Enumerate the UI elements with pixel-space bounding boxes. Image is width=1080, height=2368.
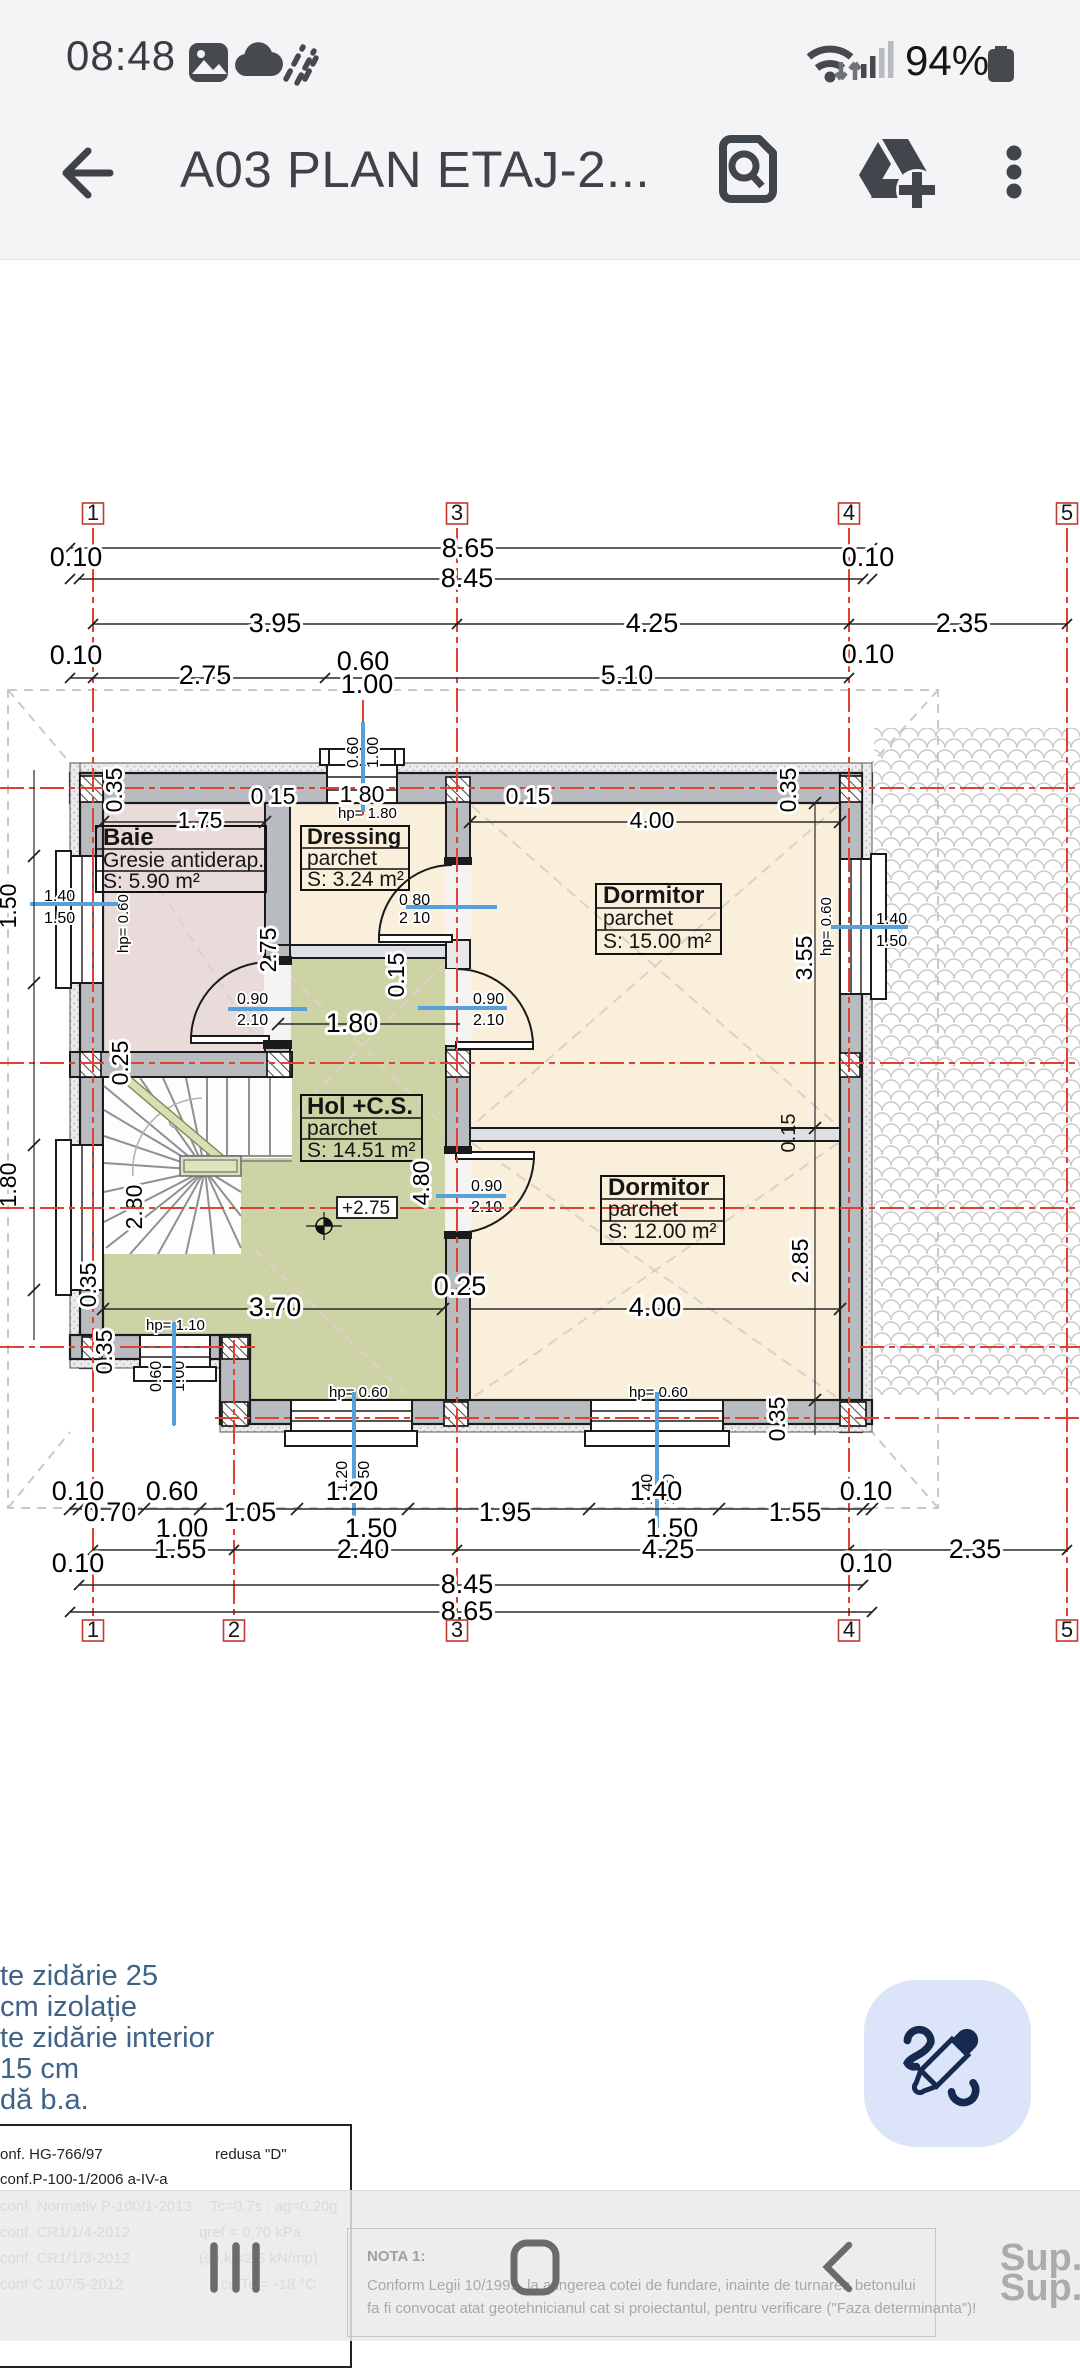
svg-text:S: 15.00 m²: S: 15.00 m²: [603, 930, 712, 953]
svg-text:0.60: 0.60: [148, 1361, 165, 1392]
svg-text:hp= 1.80: hp= 1.80: [338, 805, 397, 822]
svg-text:1: 1: [87, 1617, 99, 1642]
svg-text:1.00: 1.00: [341, 669, 394, 699]
svg-text:1.50: 1.50: [0, 884, 21, 929]
svg-text:0.70: 0.70: [84, 1497, 137, 1527]
svg-text:5: 5: [1061, 1617, 1073, 1642]
svg-text:Hol +C.S.: Hol +C.S.: [307, 1093, 413, 1120]
svg-text:0.10: 0.10: [840, 1548, 893, 1578]
svg-text:0.10: 0.10: [840, 1476, 893, 1506]
svg-text:3: 3: [451, 1617, 463, 1642]
svg-text:0.15: 0.15: [383, 953, 409, 998]
svg-text:2.75: 2.75: [179, 660, 232, 690]
svg-text:1.40: 1.40: [630, 1476, 683, 1506]
svg-text:hp= 0.60: hp= 0.60: [329, 1384, 388, 1401]
svg-text:+2.75: +2.75: [342, 1198, 390, 1219]
svg-text:parchet: parchet: [307, 1117, 377, 1140]
svg-text:S: 3.24 m²: S: 3.24 m²: [307, 868, 404, 891]
svg-text:0.10: 0.10: [842, 639, 895, 669]
svg-text:1.95: 1.95: [479, 1497, 532, 1527]
svg-text:0.60: 0.60: [345, 737, 362, 768]
svg-text:4: 4: [843, 500, 855, 525]
svg-text:4.00: 4.00: [630, 807, 675, 833]
svg-text:5.10: 5.10: [601, 660, 654, 690]
svg-text:0.10: 0.10: [52, 1548, 105, 1578]
svg-text:0.25: 0.25: [434, 1271, 487, 1301]
svg-text:Gresie antiderap.: Gresie antiderap.: [103, 849, 264, 872]
svg-text:2.85: 2.85: [787, 1239, 813, 1284]
svg-text:0 15: 0 15: [506, 783, 551, 809]
svg-text:Dressing: Dressing: [307, 824, 401, 849]
svg-text:2 10: 2 10: [399, 910, 430, 927]
svg-text:S: 5.90 m²: S: 5.90 m²: [103, 870, 200, 893]
svg-text:1.55: 1.55: [769, 1497, 822, 1527]
svg-text:2.35: 2.35: [949, 1534, 1002, 1564]
svg-text:1.80: 1.80: [326, 1008, 379, 1038]
svg-text:Dormitor: Dormitor: [603, 882, 704, 909]
svg-text:3.95: 3.95: [249, 608, 302, 638]
svg-text:3.55: 3.55: [791, 936, 817, 981]
svg-text:0.35: 0.35: [91, 1330, 117, 1375]
svg-text:S: 12.00 m²: S: 12.00 m²: [608, 1220, 717, 1243]
svg-text:0.90: 0.90: [237, 991, 268, 1008]
svg-text:parchet: parchet: [307, 847, 377, 870]
svg-text:0.10: 0.10: [842, 542, 895, 572]
svg-text:4.80: 4.80: [408, 1161, 434, 1206]
svg-text:parchet: parchet: [608, 1198, 678, 1221]
svg-text:2: 2: [228, 1617, 240, 1642]
svg-text:1 80: 1 80: [340, 781, 385, 807]
svg-text:3: 3: [451, 500, 463, 525]
svg-text:0.35: 0.35: [101, 768, 127, 813]
svg-text:2.10: 2.10: [237, 1012, 268, 1029]
svg-text:5: 5: [1061, 500, 1073, 525]
svg-text:1.20: 1.20: [326, 1476, 379, 1506]
svg-text:1.50: 1.50: [876, 933, 907, 950]
svg-text:0.10: 0.10: [50, 640, 103, 670]
svg-text:0 15: 0 15: [251, 783, 296, 809]
svg-text:parchet: parchet: [603, 907, 673, 930]
svg-text:0.60: 0.60: [146, 1476, 199, 1506]
svg-text:1.55: 1.55: [154, 1534, 207, 1564]
svg-text:0.35: 0.35: [764, 1397, 790, 1442]
svg-text:0.90: 0.90: [473, 991, 504, 1008]
svg-text:1.80: 1.80: [0, 1163, 21, 1208]
svg-text:2.10: 2.10: [473, 1012, 504, 1029]
svg-text:0.90: 0.90: [471, 1178, 502, 1195]
svg-text:4.00: 4.00: [629, 1292, 682, 1322]
svg-text:8.45: 8.45: [441, 1569, 494, 1599]
svg-text:Dormitor: Dormitor: [608, 1174, 709, 1201]
svg-text:Baie: Baie: [103, 824, 154, 851]
svg-text:1.00: 1.00: [365, 737, 382, 768]
svg-text:4: 4: [843, 1617, 855, 1642]
svg-text:4.25: 4.25: [642, 1534, 695, 1564]
svg-text:2.35: 2.35: [936, 608, 989, 638]
svg-text:4.25: 4.25: [626, 608, 679, 638]
svg-text:S: 14.51 m²: S: 14.51 m²: [307, 1139, 416, 1162]
svg-text:1: 1: [87, 500, 99, 525]
svg-text:8.45: 8.45: [441, 563, 494, 593]
svg-text:3.70: 3.70: [249, 1292, 302, 1322]
svg-text:0.35: 0.35: [75, 1263, 101, 1308]
svg-text:0.10: 0.10: [50, 542, 103, 572]
svg-text:1.75: 1.75: [178, 807, 223, 833]
svg-text:2.40: 2.40: [337, 1534, 390, 1564]
svg-text:0.35: 0.35: [775, 768, 801, 813]
svg-text:2.75: 2.75: [255, 928, 281, 973]
svg-text:8.65: 8.65: [442, 533, 495, 563]
svg-text:0.15: 0.15: [778, 1114, 800, 1153]
svg-text:1.05: 1.05: [224, 1497, 277, 1527]
svg-text:0.25: 0.25: [107, 1041, 133, 1086]
svg-text:1.50: 1.50: [44, 910, 75, 927]
